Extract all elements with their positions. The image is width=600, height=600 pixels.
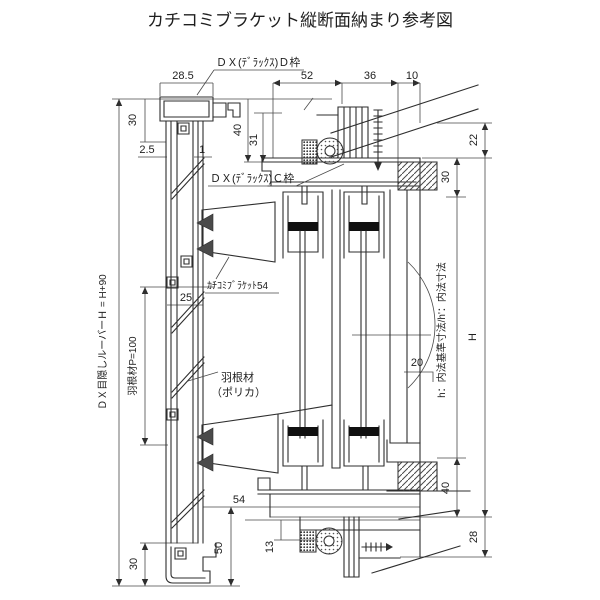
dim-bottom-left-30: 30 [128, 558, 140, 570]
label-louver-height: ＤＸ目隠しルーバーＨ = H+90 [97, 274, 109, 410]
dim-top-52: 52 [301, 70, 313, 82]
dim-arc-20: 20 [411, 357, 423, 369]
dim-right-30: 30 [440, 171, 452, 183]
dim-bottom-54: 54 [233, 494, 245, 506]
backer-block-top [302, 140, 317, 164]
dim-top-left-30: 30 [127, 114, 139, 126]
swing-arc [408, 262, 435, 388]
dim-right-22: 22 [468, 134, 480, 146]
page-title: カチコミブラケット縦断面納まり参考図 [147, 10, 453, 30]
label-blade-polica: （ポリカ） [211, 386, 266, 399]
label-c-frame: ＤＸ(ﾃﾞﾗｯｸｽ)Ｃ枠 [210, 171, 294, 185]
dim-overall-height: H [467, 333, 479, 341]
dim-mid-25: 25 [180, 292, 192, 304]
label-blade-pitch: 羽根材P=100 [126, 336, 139, 396]
label-d-frame: ＤＸ(ﾃﾞﾗｯｸｽ)Ｄ枠 [216, 55, 300, 69]
dim-gap-2-5: 2.5 [139, 144, 154, 156]
label-blade-material: 羽根材 [221, 370, 254, 384]
drawing-page: カチコミブラケット縦断面納まり参考図 ＤＸ(ﾃﾞﾗｯｸｽ)Ｄ枠 ＤＸ(ﾃﾞﾗｯｸ… [0, 0, 600, 600]
dim-bottom-50: 50 [213, 542, 225, 554]
louver-section [160, 97, 240, 583]
screw-bottom [362, 543, 386, 551]
dim-head-40: 40 [232, 124, 244, 136]
label-inner-note: h：内法基準寸法/h'：内法寸法 [435, 262, 448, 398]
dim-gap-1: 1 [199, 144, 205, 156]
backer-block-bottom [300, 530, 316, 552]
sill-section [258, 440, 470, 573]
label-bracket: ｶﾁｺﾐﾌﾞﾗｹｯﾄ54 [207, 280, 269, 292]
dim-bottom-13: 13 [264, 541, 276, 553]
sash-sections [283, 192, 435, 490]
section-drawing-canvas: カチコミブラケット縦断面納まり参考図 ＤＸ(ﾃﾞﾗｯｸｽ)Ｄ枠 ＤＸ(ﾃﾞﾗｯｸ… [0, 0, 600, 600]
dim-head-31: 31 [248, 134, 260, 146]
dim-right-28: 28 [468, 531, 480, 543]
dim-top-36: 36 [364, 70, 376, 82]
dim-right-40: 40 [440, 482, 452, 494]
screw-top [374, 110, 382, 162]
dim-top-10: 10 [406, 70, 418, 82]
dim-cap-width: 28.5 [172, 70, 193, 82]
